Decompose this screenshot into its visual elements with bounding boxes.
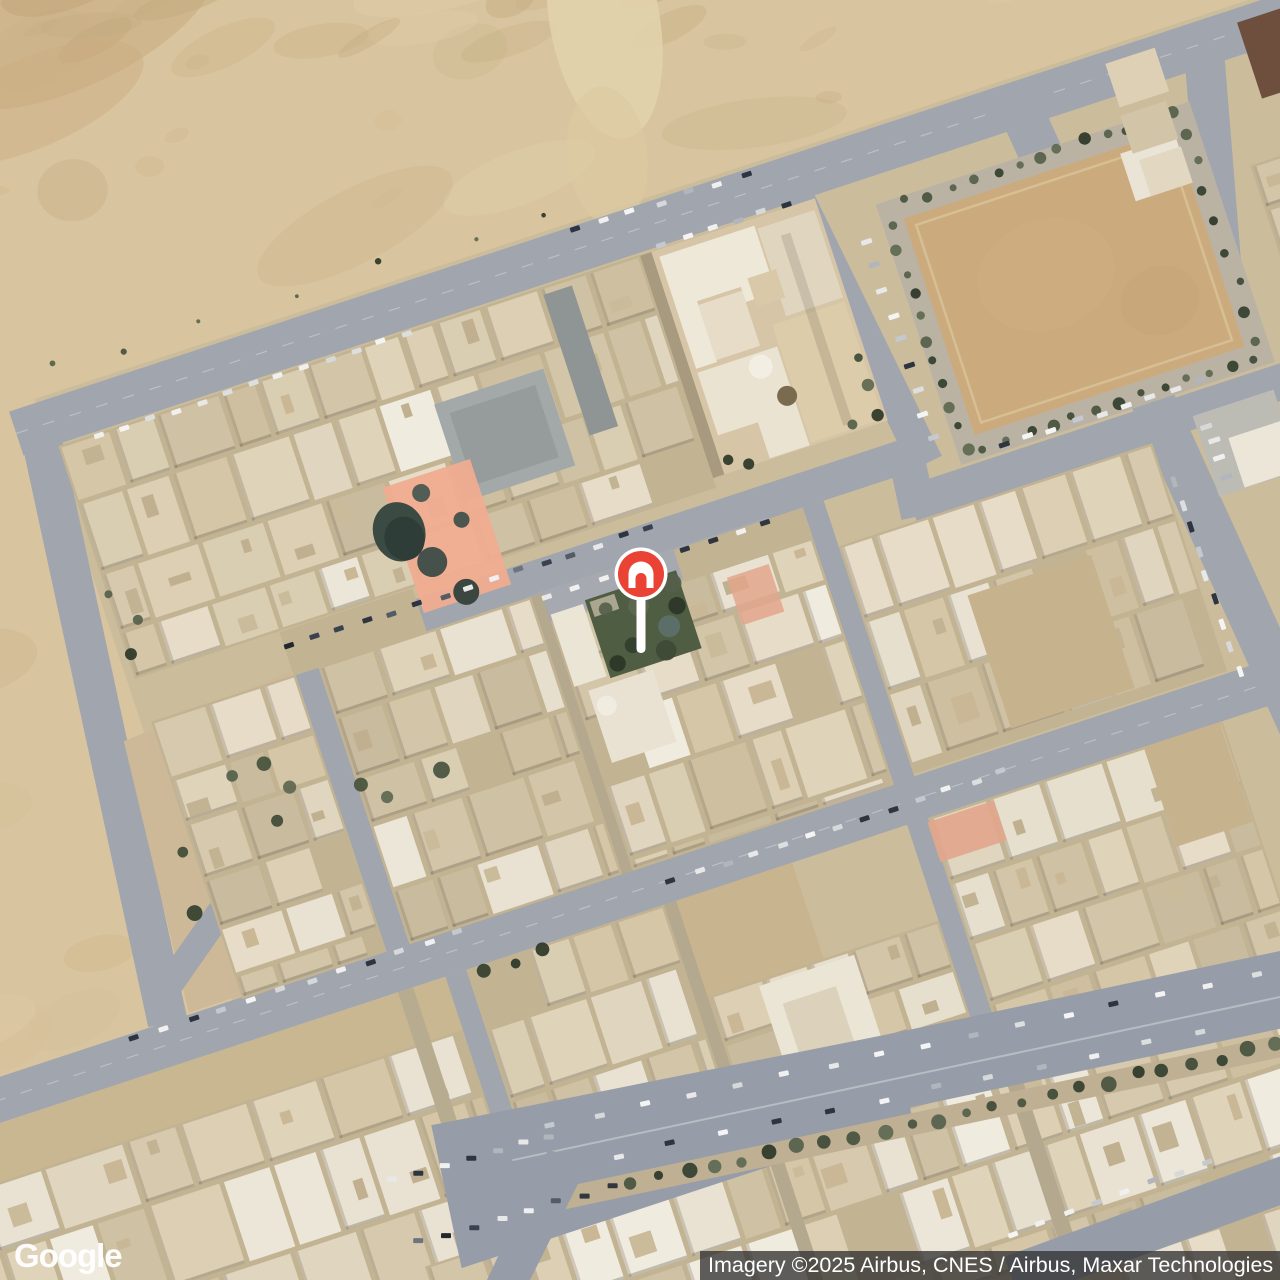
- svg-text:Google: Google: [14, 1237, 122, 1274]
- svg-text:Imagery ©2025 Airbus, CNES / A: Imagery ©2025 Airbus, CNES / Airbus, Max…: [708, 1253, 1273, 1277]
